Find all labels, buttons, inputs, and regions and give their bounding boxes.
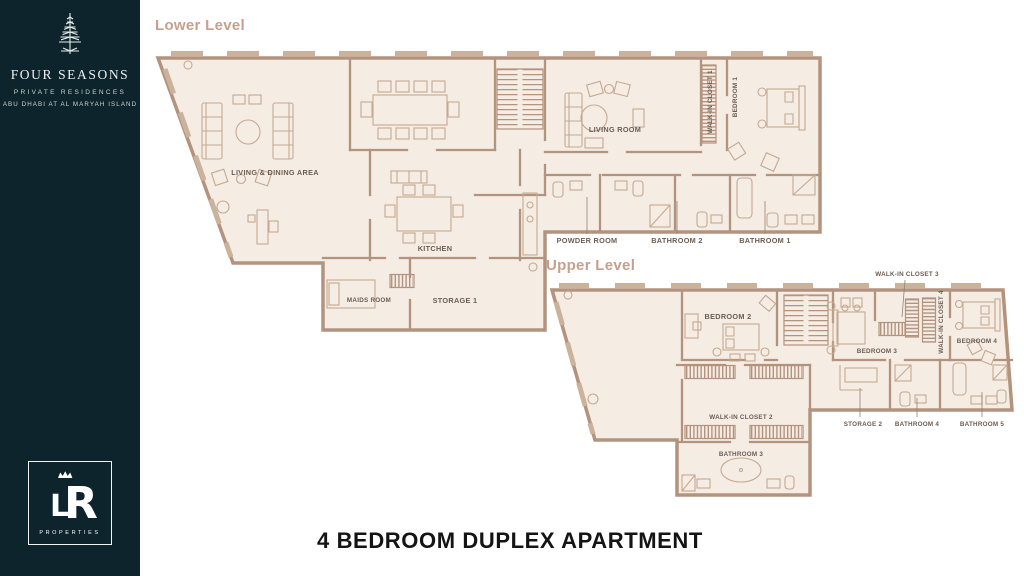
windows-slant bbox=[165, 69, 231, 257]
lr-monogram-icon: L R bbox=[31, 462, 109, 524]
living-room-furniture bbox=[565, 81, 644, 148]
monogram-r: R bbox=[64, 478, 98, 524]
living-dining-furniture bbox=[184, 61, 293, 244]
label-bedroom2: BEDROOM 2 bbox=[705, 312, 752, 321]
label-wic3: WALK-IN CLOSET 3 bbox=[875, 271, 939, 278]
label-bedroom4: BEDROOM 4 bbox=[957, 338, 998, 345]
page: FOUR SEASONS PRIVATE RESIDENCES ABU DHAB… bbox=[0, 0, 1024, 576]
lower-outline bbox=[158, 58, 820, 330]
label-bathroom2: BATHROOM 2 bbox=[651, 236, 703, 245]
bedroom4-furniture bbox=[956, 299, 1001, 365]
label-storage1: STORAGE 1 bbox=[433, 296, 478, 305]
label-maids-room: MAIDS ROOM bbox=[347, 297, 391, 304]
label-powder-room: POWDER ROOM bbox=[557, 236, 618, 245]
label-bathroom3: BATHROOM 3 bbox=[719, 451, 764, 458]
crown-icon bbox=[58, 471, 72, 478]
bathroom3-fixtures bbox=[682, 458, 794, 491]
label-wic1: WALK-IN CLOSET 1 bbox=[707, 70, 714, 134]
brand-location: ABU DHABI AT AL MARYAH ISLAND bbox=[0, 101, 140, 108]
bedroom1-furniture bbox=[728, 86, 805, 171]
bathroom4-fixtures bbox=[895, 365, 926, 406]
label-bathroom1: BATHROOM 1 bbox=[739, 236, 791, 245]
dining-room-furniture bbox=[361, 81, 459, 139]
upper-callout-leaders bbox=[860, 280, 982, 417]
upper-level-floorplan: BEDROOM 2 BEDROOM 3 BEDROOM 4 WALK-IN CL… bbox=[545, 262, 1024, 526]
label-kitchen: KITCHEN bbox=[418, 244, 453, 253]
lower-callout-leaders bbox=[587, 197, 765, 234]
upper-outline bbox=[552, 290, 1012, 495]
label-storage2: STORAGE 2 bbox=[844, 421, 883, 428]
wic2-wardrobes bbox=[685, 366, 803, 439]
staircase-upper bbox=[784, 295, 828, 345]
label-living-room: LIVING ROOM bbox=[589, 125, 641, 134]
sidebar: FOUR SEASONS PRIVATE RESIDENCES ABU DHAB… bbox=[0, 0, 140, 576]
bedroom3-furniture bbox=[827, 298, 865, 354]
brand-subtitle: PRIVATE RESIDENCES bbox=[0, 89, 140, 96]
label-bedroom3: BEDROOM 3 bbox=[857, 348, 898, 355]
brand-name: FOUR SEASONS bbox=[0, 67, 140, 83]
page-title: 4 BEDROOM DUPLEX APARTMENT bbox=[145, 528, 875, 554]
lower-level-heading: Lower Level bbox=[155, 17, 245, 34]
upper-level-heading: Upper Level bbox=[546, 257, 635, 274]
label-wic4: WALK-IN CLOSET 4 bbox=[938, 290, 945, 354]
lr-properties-logo: L R PROPERTIES bbox=[28, 461, 112, 545]
terrace bbox=[564, 291, 598, 404]
bedroom2-furniture bbox=[685, 295, 776, 361]
bathroom5-fixtures bbox=[953, 363, 1007, 404]
kitchen-furniture bbox=[385, 171, 537, 255]
label-bathroom5: BATHROOM 5 bbox=[960, 421, 1005, 428]
label-wic2: WALK-IN CLOSET 2 bbox=[709, 414, 773, 421]
four-seasons-logo: FOUR SEASONS PRIVATE RESIDENCES ABU DHAB… bbox=[0, 10, 140, 108]
wic3-wardrobe bbox=[879, 299, 919, 337]
storage2-fixtures bbox=[840, 365, 877, 390]
staircase bbox=[497, 69, 543, 129]
label-living-dining: LIVING & DINING AREA bbox=[231, 168, 319, 177]
lr-properties-label: PROPERTIES bbox=[29, 530, 111, 536]
walk-in-closet1-wardrobe bbox=[702, 65, 716, 143]
tree-icon bbox=[47, 10, 93, 56]
maids-storage-furniture bbox=[327, 263, 537, 308]
label-bedroom1: BEDROOM 1 bbox=[732, 77, 739, 118]
lower-walls bbox=[323, 58, 820, 330]
bathroom-fixtures bbox=[553, 175, 815, 227]
lower-level-floorplan: LIVING & DINING AREA KITCHEN MAIDS ROOM … bbox=[145, 45, 840, 345]
label-bathroom4: BATHROOM 4 bbox=[895, 421, 940, 428]
upper-walls bbox=[677, 290, 1012, 442]
windows-slant bbox=[556, 302, 593, 434]
wic4-wardrobe bbox=[923, 298, 936, 342]
